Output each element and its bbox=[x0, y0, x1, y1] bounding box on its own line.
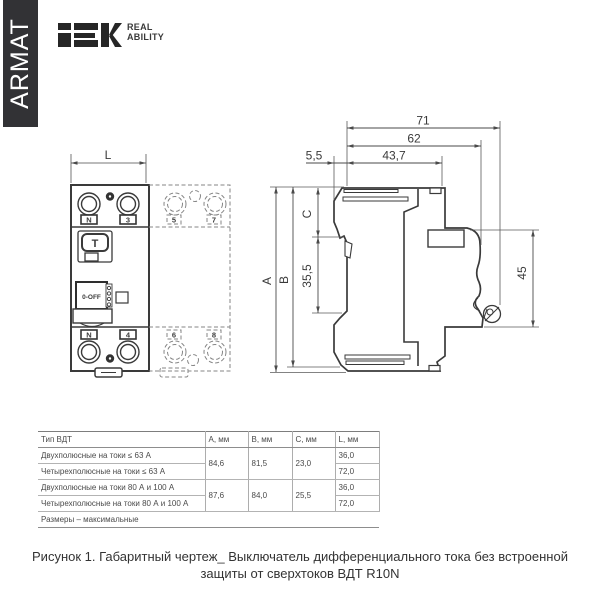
col-header-l: L, мм bbox=[335, 432, 379, 448]
caption-line2: защиты от сверхтоков ВДТ R10N bbox=[10, 565, 590, 582]
caption-line1: Рисунок 1. Габаритный чертеж_ Выключател… bbox=[10, 548, 590, 565]
dim-label-35-5: 35,5 bbox=[300, 264, 314, 288]
cell-type-2: Четырехполюсные на токи ≤ 63 А bbox=[38, 464, 205, 480]
toggle-indicator-strip bbox=[106, 284, 112, 307]
terminal-label-7: 7 bbox=[212, 216, 216, 225]
dim-label-62: 62 bbox=[407, 132, 421, 146]
tagline-line2: ABILITY bbox=[127, 32, 164, 42]
front-indicator-dot-bottom-center bbox=[109, 357, 111, 359]
dim-label-43-7: 43,7 bbox=[382, 149, 406, 163]
toggle-label: 0-OFF bbox=[82, 294, 101, 301]
dimensions-table: Тип ВДТ A, мм B, мм C, мм L, мм Двухполю… bbox=[38, 431, 380, 528]
cell-type-3: Двухполюсные на токи 80 А и 100 А bbox=[38, 480, 205, 496]
tagline-line1: REAL bbox=[127, 22, 153, 32]
terminal-label-8: 8 bbox=[212, 331, 216, 340]
iek-logo: REAL ABILITY bbox=[57, 20, 172, 55]
table-row: Двухполюсные на токи 80 А и 100 А 87,6 8… bbox=[38, 480, 379, 496]
dim-label-71: 71 bbox=[416, 114, 430, 128]
table-note-row: Размеры – максимальные bbox=[38, 512, 379, 528]
cell-b-3: 84,0 bbox=[248, 480, 292, 512]
figure-caption: Рисунок 1. Габаритный чертеж_ Выключател… bbox=[10, 548, 590, 582]
iek-logo-letters bbox=[58, 23, 122, 47]
four-pole-extension bbox=[149, 185, 230, 377]
dim-label-c: C bbox=[300, 209, 314, 218]
front-indicator-dot-top-center bbox=[109, 195, 111, 197]
table-row: Двухполюсные на токи ≤ 63 А 84,6 81,5 23… bbox=[38, 448, 379, 464]
side-view: 71 62 5,5 43,7 A B C 35,5 45 bbox=[260, 114, 539, 373]
terminal-label-n-top: N bbox=[86, 216, 91, 225]
cell-l-1: 36,0 bbox=[335, 448, 379, 464]
toggle-side-window bbox=[116, 292, 128, 303]
cell-type-1: Двухполюсные на токи ≤ 63 А bbox=[38, 448, 205, 464]
cell-c-1: 23,0 bbox=[292, 448, 335, 480]
terminal-label-5: 5 bbox=[172, 216, 176, 225]
dim-label-45: 45 bbox=[515, 266, 529, 280]
cell-l-3: 36,0 bbox=[335, 480, 379, 496]
four-pole-terminal-labels: 5 7 6 8 bbox=[172, 216, 216, 340]
cell-l-2: 72,0 bbox=[335, 464, 379, 480]
dim-label-a: A bbox=[260, 277, 274, 285]
table-header-row: Тип ВДТ A, мм B, мм C, мм L, мм bbox=[38, 432, 379, 448]
front-view: L N 3 T 0-OFF bbox=[71, 148, 230, 377]
table-note: Размеры – максимальные bbox=[38, 512, 379, 528]
dim-label-b: B bbox=[277, 276, 291, 284]
terminal-label-n-bottom: N bbox=[86, 331, 91, 340]
terminal-label-3: 3 bbox=[126, 216, 130, 225]
col-header-type: Тип ВДТ bbox=[38, 432, 205, 448]
terminal-label-6: 6 bbox=[172, 331, 176, 340]
col-header-a: A, мм bbox=[205, 432, 248, 448]
toggle-base bbox=[73, 309, 112, 323]
col-header-b: B, мм bbox=[248, 432, 292, 448]
dimension-drawing: L N 3 T 0-OFF bbox=[0, 95, 600, 440]
cell-c-3: 25,5 bbox=[292, 480, 335, 512]
cell-a-3: 87,6 bbox=[205, 480, 248, 512]
cell-a-1: 84,6 bbox=[205, 448, 248, 480]
device-body-side bbox=[334, 188, 483, 371]
cell-b-1: 81,5 bbox=[248, 448, 292, 480]
dim-label-l: L bbox=[105, 148, 112, 162]
datasheet-page: ARMAT REAL ABILITY bbox=[0, 0, 600, 600]
dim-label-5-5: 5,5 bbox=[306, 149, 323, 163]
iek-logo-graphic: REAL ABILITY bbox=[57, 20, 172, 50]
cell-l-4: 72,0 bbox=[335, 496, 379, 512]
cell-type-4: Четырехполюсные на токи 80 А и 100 А bbox=[38, 496, 205, 512]
test-button-label: T bbox=[92, 238, 99, 250]
col-header-c: C, мм bbox=[292, 432, 335, 448]
